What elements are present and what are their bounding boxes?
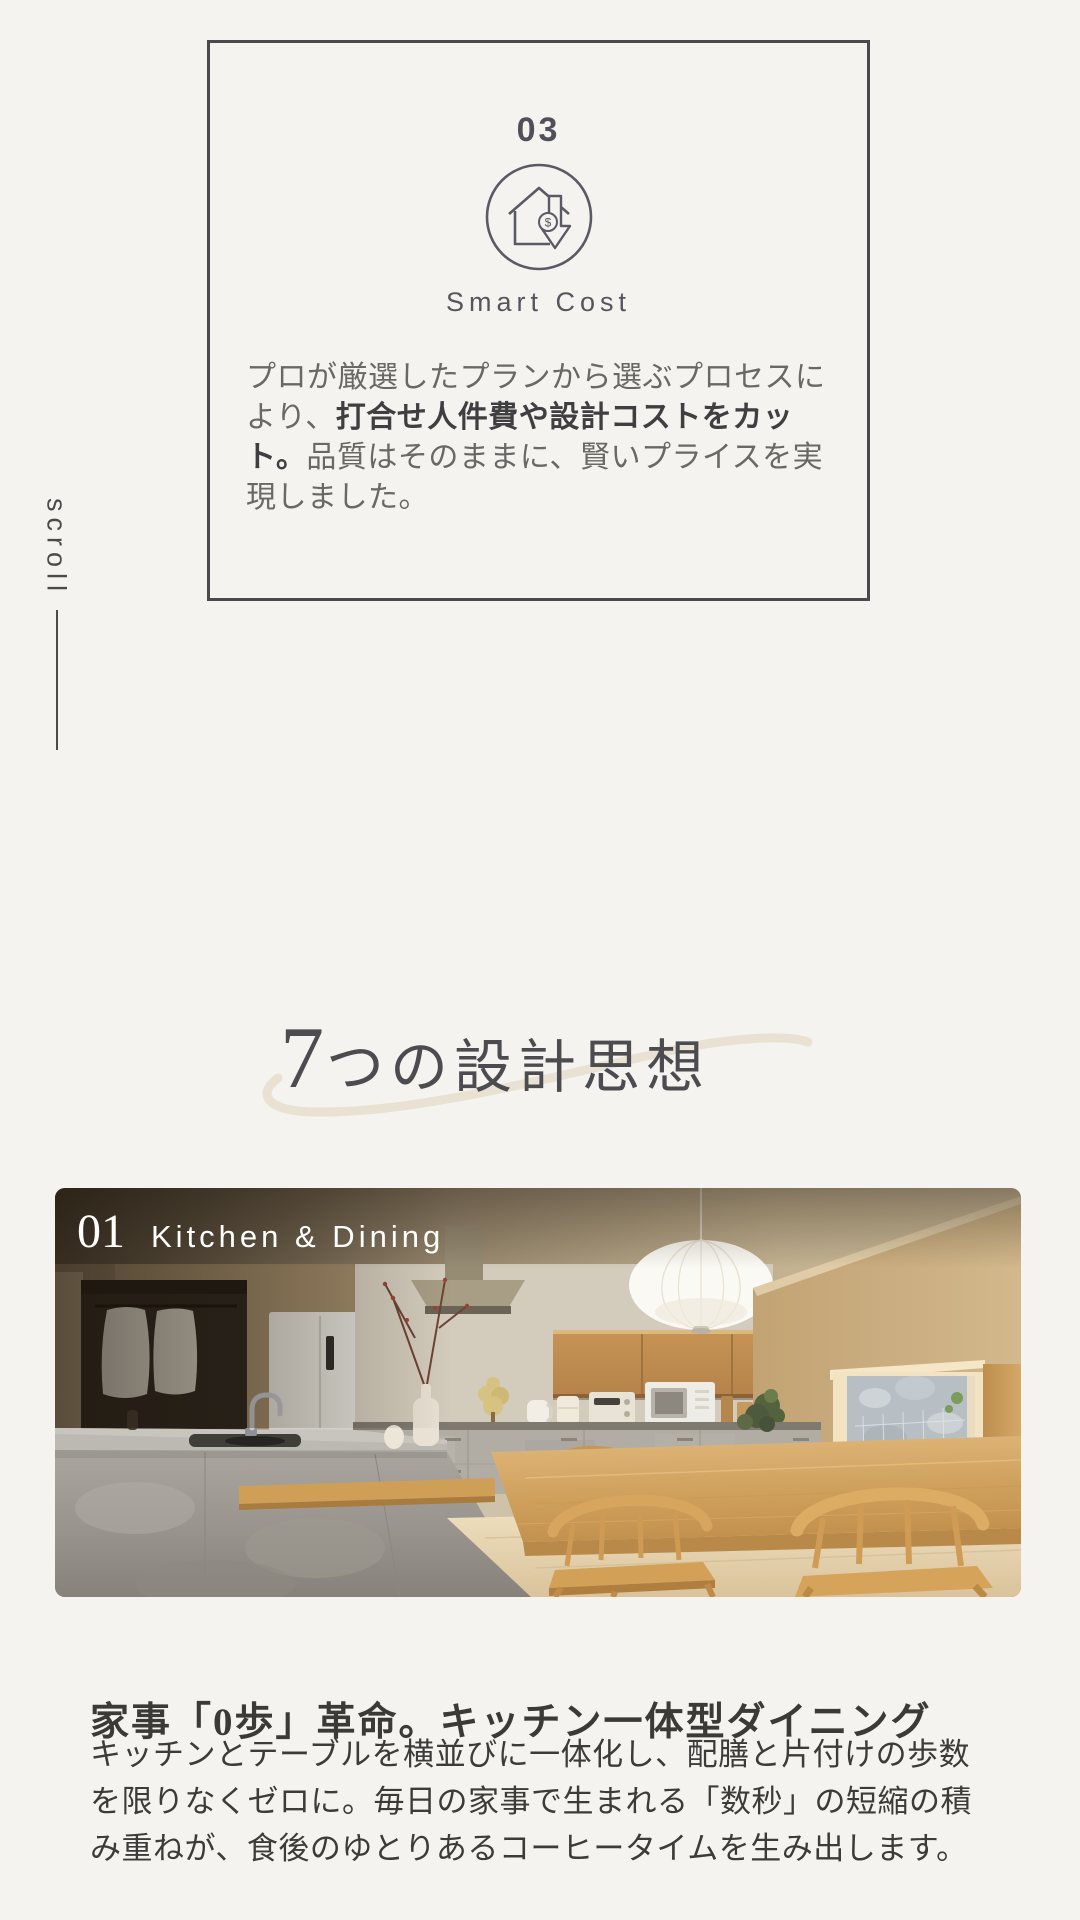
house-price-down-icon: $ bbox=[476, 154, 602, 280]
smart-cost-card: 03 $ Smart Cost プロが厳選したプランから選ぶプロセスにより、打合… bbox=[207, 40, 870, 601]
photo-number: 01 bbox=[77, 1204, 125, 1259]
svg-text:$: $ bbox=[544, 216, 551, 230]
scroll-indicator-label: scroll bbox=[41, 498, 72, 608]
card-title: Smart Cost bbox=[210, 287, 867, 318]
section-heading-number: 7 bbox=[280, 1010, 326, 1107]
section-heading: 7つの設計思想 bbox=[0, 1008, 990, 1109]
section-heading-text: つの設計思想 bbox=[326, 1035, 710, 1100]
kitchen-dining-photo-card: 01 Kitchen & Dining bbox=[55, 1188, 1021, 1597]
landing-page: 03 $ Smart Cost プロが厳選したプランから選ぶプロセスにより、打合… bbox=[0, 0, 1080, 1920]
card-body: プロが厳選したプランから選ぶプロセスにより、打合せ人件費や設計コストをカット。品… bbox=[246, 358, 831, 518]
photo-label-text: Kitchen & Dining bbox=[151, 1219, 444, 1255]
scroll-indicator: scroll bbox=[30, 498, 82, 608]
scroll-indicator-line bbox=[56, 610, 58, 750]
card-icon-wrap: $ bbox=[210, 154, 867, 285]
card-number: 03 bbox=[210, 111, 867, 150]
detail-body: キッチンとテーブルを横並びに一体化し、配膳と片付けの歩数を限りなくゼロに。毎日の… bbox=[90, 1731, 995, 1872]
card-body-post: 品質はそのままに、賢いプライスを実現しました。 bbox=[246, 441, 823, 514]
photo-label: 01 Kitchen & Dining bbox=[77, 1204, 444, 1259]
